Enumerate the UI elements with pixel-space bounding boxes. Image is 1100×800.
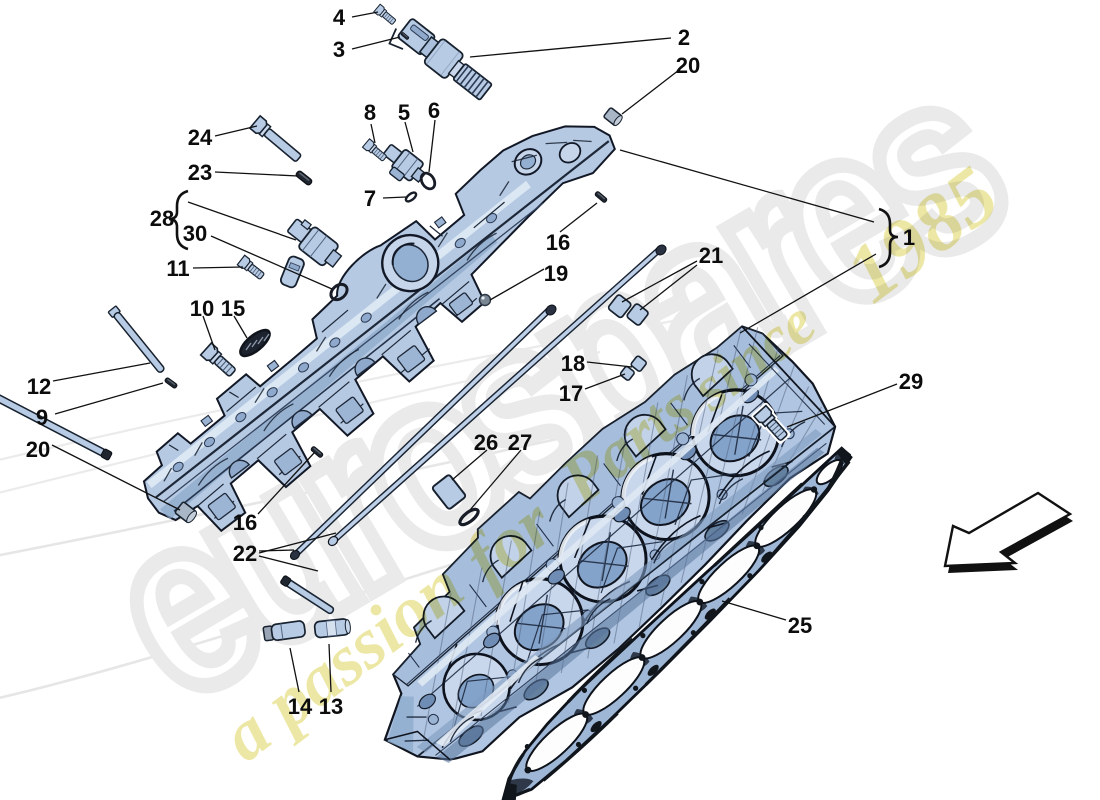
svg-text:3: 3 [333, 37, 345, 62]
svg-text:23: 23 [188, 160, 212, 185]
svg-text:6: 6 [428, 98, 440, 123]
svg-text:16: 16 [546, 230, 570, 255]
svg-text:20: 20 [26, 437, 50, 462]
svg-text:7: 7 [364, 186, 376, 211]
svg-text:18: 18 [561, 351, 585, 376]
svg-text:14: 14 [288, 694, 313, 719]
svg-text:13: 13 [319, 694, 343, 719]
svg-text:19: 19 [544, 261, 568, 286]
svg-text:2: 2 [678, 25, 690, 50]
svg-text:25: 25 [788, 613, 812, 638]
svg-text:21: 21 [699, 243, 723, 268]
svg-text:20: 20 [676, 53, 700, 78]
svg-text:17: 17 [559, 381, 583, 406]
svg-text:28: 28 [150, 206, 174, 231]
svg-text:24: 24 [188, 125, 213, 150]
svg-text:11: 11 [166, 256, 189, 281]
svg-text:26: 26 [474, 430, 498, 455]
svg-text:16: 16 [233, 510, 257, 535]
svg-text:10: 10 [190, 296, 214, 321]
svg-text:5: 5 [398, 100, 410, 125]
svg-text:1: 1 [903, 225, 915, 250]
svg-text:8: 8 [364, 100, 376, 125]
svg-text:29: 29 [899, 369, 923, 394]
svg-text:9: 9 [36, 405, 48, 430]
svg-text:4: 4 [333, 5, 346, 30]
svg-text:30: 30 [183, 221, 207, 246]
svg-text:22: 22 [233, 541, 257, 566]
svg-text:15: 15 [221, 296, 245, 321]
svg-text:27: 27 [508, 430, 532, 455]
svg-text:12: 12 [27, 374, 51, 399]
